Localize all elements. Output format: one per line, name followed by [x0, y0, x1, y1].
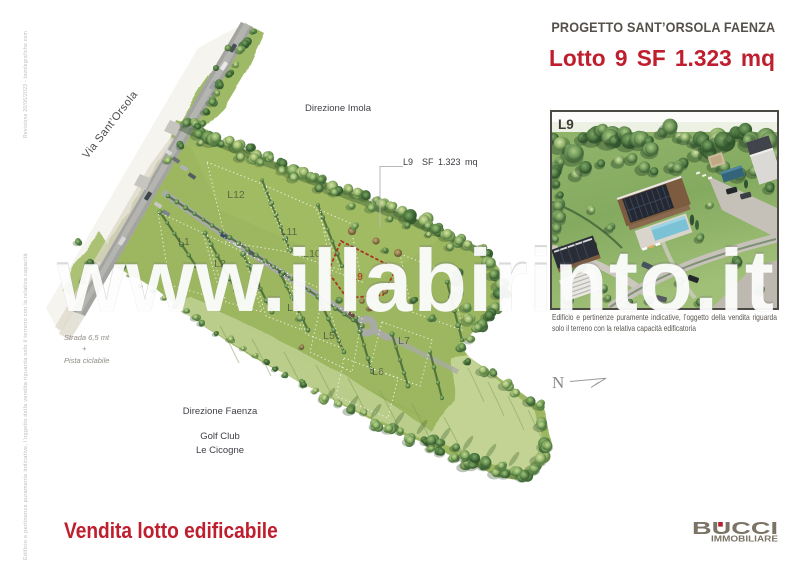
svg-text:L6: L6: [372, 366, 384, 378]
svg-text:N: N: [552, 373, 564, 392]
svg-text:IMMOBILIARE: IMMOBILIARE: [711, 535, 779, 544]
svg-text:L5: L5: [323, 330, 335, 342]
svg-text:L7: L7: [398, 335, 410, 347]
svg-text:L9: L9: [558, 117, 574, 132]
svg-text:L12: L12: [227, 189, 245, 201]
